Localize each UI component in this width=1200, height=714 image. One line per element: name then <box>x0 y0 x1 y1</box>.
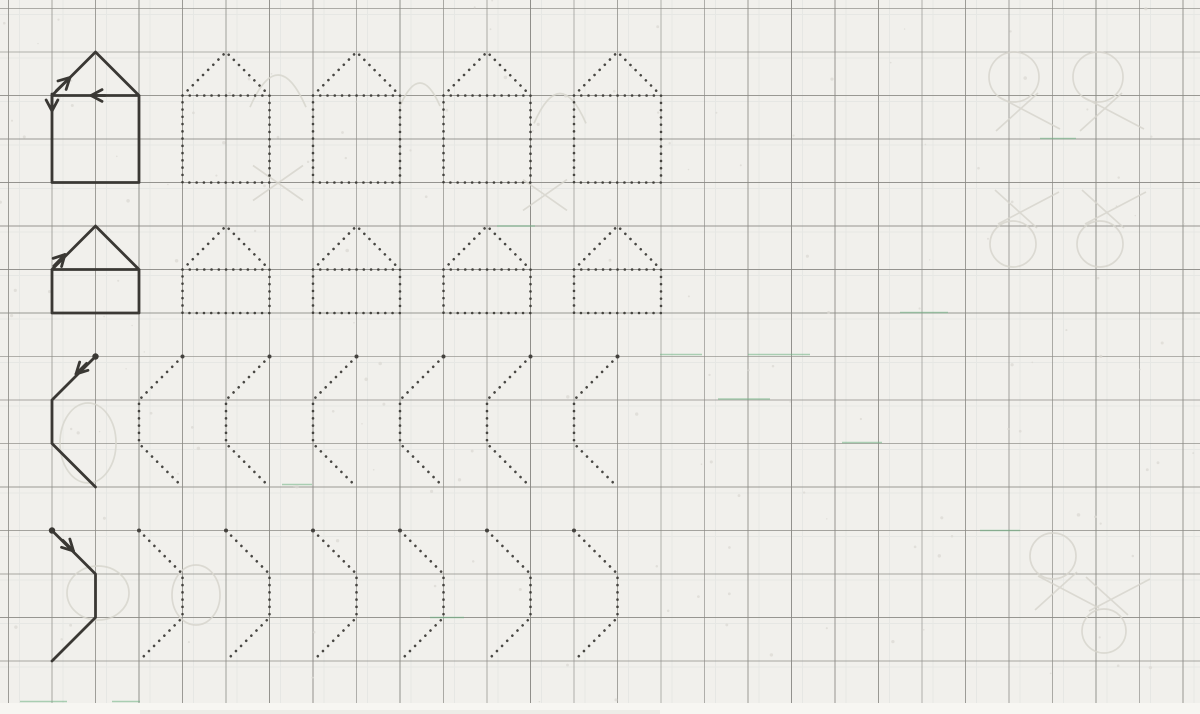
row-3-zigzag-left-start-dot <box>92 353 98 359</box>
row-4-zigzag-right-start-dot <box>49 527 55 533</box>
scan-edge-shadow <box>140 710 660 714</box>
scanned-worksheet-page <box>0 0 1200 714</box>
worksheet-scan <box>0 0 1200 714</box>
